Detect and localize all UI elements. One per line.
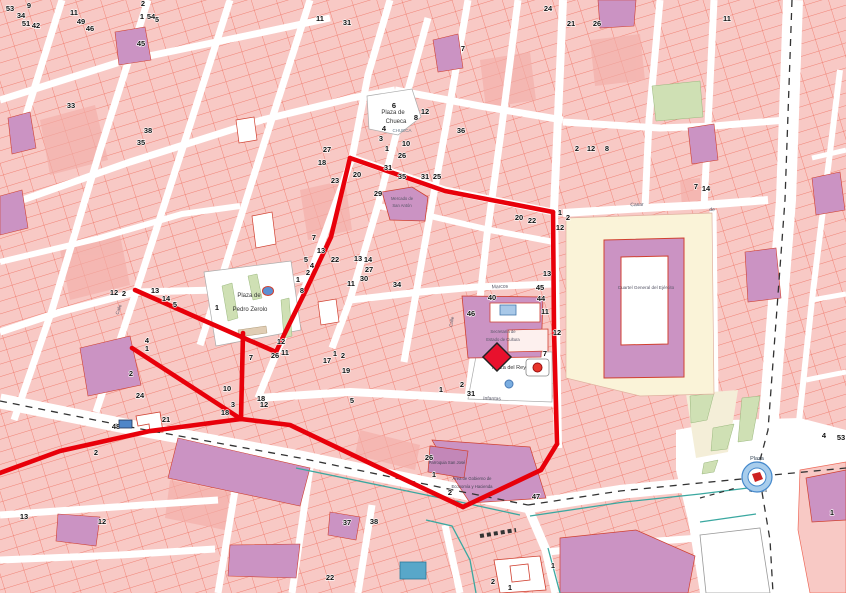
parcel-number: 2	[566, 213, 570, 222]
parcel-number: 27	[365, 265, 373, 274]
parcel-number: 11	[281, 348, 289, 357]
parcel-number: 14	[702, 184, 711, 193]
parcel-number: 44	[537, 294, 546, 303]
parcel-number: 51	[22, 19, 30, 28]
street-label: de	[709, 207, 715, 213]
route-boundary-line	[241, 333, 243, 419]
purple-parcel	[812, 172, 845, 215]
place-label: Cuartel General del Ejército	[618, 285, 675, 290]
blue-dot	[505, 380, 513, 388]
parcel-number: 10	[223, 384, 231, 393]
parcel-number: 13	[543, 269, 551, 278]
parcel-number: 1	[508, 583, 512, 592]
parcel-number: 34	[393, 280, 402, 289]
parcel-number: 53	[837, 433, 845, 442]
parcel-number: 29	[374, 189, 382, 198]
zerolo-fountain	[263, 287, 274, 296]
parcel-number: 10	[402, 139, 410, 148]
parcel-number: 12	[553, 328, 561, 337]
parcel-number: 53	[6, 4, 14, 13]
parcel-number: 23	[331, 176, 339, 185]
parcel-number: 18	[257, 394, 265, 403]
place-label: Área de Gobierno de	[453, 476, 493, 481]
parcel-number: 19	[342, 366, 350, 375]
street-label: Infantas	[483, 396, 501, 403]
parcel-number: 45	[137, 39, 145, 48]
parcel-number: 8	[300, 286, 304, 295]
purple-parcel	[745, 248, 781, 302]
place-label: Plaza de	[381, 110, 405, 116]
parcel-number: 18	[221, 408, 229, 417]
parcel-number: 12	[556, 223, 564, 232]
place-label: Estado de Cultura	[486, 337, 520, 342]
parcel-number: 1	[439, 385, 443, 394]
parcel-number: 5	[155, 15, 159, 24]
parcel-number: 13	[20, 512, 28, 521]
place-label: San Antón	[392, 203, 412, 208]
parcel-number: 12	[421, 107, 429, 116]
parcel-number: 7	[461, 44, 465, 53]
white-building	[236, 117, 257, 143]
green	[652, 81, 703, 121]
parcel-number: 6	[392, 101, 396, 110]
parcel-number: 46	[86, 24, 94, 33]
place-label: Economía y Hacienda	[452, 484, 494, 489]
pool	[500, 305, 516, 315]
parcel-number: 7	[543, 349, 547, 358]
parcel-number: 1	[385, 144, 389, 153]
parcel-number: 20	[515, 213, 523, 222]
parcel-number: 31	[467, 389, 475, 398]
parcel-number: 25	[433, 172, 441, 181]
place-label: Mercado de	[391, 196, 414, 201]
parcel-number: 36	[457, 126, 465, 135]
parcel-number: 2	[122, 289, 126, 298]
parcel-number: 12	[277, 337, 285, 346]
parcel-number: 21	[567, 19, 575, 28]
white-building	[252, 212, 276, 248]
purple-parcel	[688, 124, 718, 164]
pool	[400, 562, 426, 579]
courtyard	[621, 256, 668, 345]
parcel-number: 22	[326, 573, 334, 582]
parcel-shade	[590, 34, 645, 86]
parcel-number: 27	[323, 145, 331, 154]
place-label: CHUECA	[392, 128, 411, 133]
parcel-number: 37	[343, 518, 351, 527]
parcel-number: 7	[694, 182, 698, 191]
bus-icon	[119, 420, 132, 428]
place-label: Parroquia San José	[429, 460, 466, 465]
parcel-number: 38	[144, 126, 152, 135]
parcel-number: 11	[316, 14, 324, 23]
purple-parcel	[115, 27, 151, 65]
parcel-number: 2	[575, 144, 579, 153]
parcel-number: 14	[364, 255, 373, 264]
parcel-number: 12	[98, 517, 106, 526]
purple-parcel	[598, 0, 636, 28]
parcel-number: 3	[379, 134, 383, 143]
parcel-number: 46	[467, 309, 475, 318]
parcel-number: 47	[532, 492, 540, 501]
white-building	[318, 299, 339, 325]
parcel-number: 31	[343, 18, 351, 27]
parcel-number: 11	[347, 279, 355, 288]
parcel-number: 2	[460, 380, 464, 389]
parcel-number: 2	[141, 0, 145, 8]
parcel-number: 40	[488, 293, 496, 302]
parcel-number: 1	[333, 349, 337, 358]
parcel-number: 17	[323, 356, 331, 365]
parcel-number: 26	[593, 19, 601, 28]
parcel-number: 1	[558, 208, 562, 217]
parcel-number: 8	[414, 113, 418, 122]
parcel-number: 22	[528, 216, 536, 225]
white-building	[510, 564, 530, 582]
parcel-number: 9	[27, 1, 31, 10]
parcel-number: 26	[398, 151, 406, 160]
parcel-number: 24	[136, 391, 145, 400]
place-label: Pedro Zerolo	[233, 307, 268, 313]
parcel-number: 21	[162, 415, 170, 424]
parcel-number: 1	[432, 470, 436, 479]
parcel-number: 30	[360, 274, 368, 283]
parcel-number: 31	[384, 163, 392, 172]
place-label: Secretaría de	[490, 329, 516, 334]
street-label: Marcos	[492, 284, 509, 291]
parcel-number: 11	[70, 8, 78, 17]
place-label: Chueca	[386, 119, 407, 125]
parcel-number: 5	[350, 396, 354, 405]
parcel-number: 7	[312, 233, 316, 242]
parcel-number: 1	[551, 561, 555, 570]
parcel-number: 11	[723, 14, 731, 23]
parcel-number: 2	[94, 448, 98, 457]
parcel-number: 35	[137, 138, 145, 147]
parcel-number: 13	[151, 286, 159, 295]
parcel-number: 1	[296, 275, 300, 284]
parcel-number: 54	[147, 12, 156, 21]
poi-red-dot[interactable]	[533, 363, 542, 372]
parcel-number: 11	[541, 307, 549, 316]
parcel-number: 2	[491, 577, 495, 586]
parcel-number: 22	[331, 255, 339, 264]
map-canvas[interactable]: 5393451421149462154533383554113124212611…	[0, 0, 846, 593]
parcel-number: 33	[67, 101, 75, 110]
parcel-number: 13	[317, 246, 325, 255]
purple-parcel	[228, 544, 300, 578]
parcel-number: 38	[370, 517, 378, 526]
parcel-number: 42	[32, 21, 40, 30]
parcel-number: 3	[231, 400, 235, 409]
parcel-number: 20	[353, 170, 361, 179]
parcel-number: 2	[341, 351, 345, 360]
parcel-number: 1	[215, 303, 219, 312]
parcel-number: 2	[129, 369, 133, 378]
parcel-number: 2	[448, 488, 452, 497]
parcel-number: 1	[830, 508, 834, 517]
place-label: Plaza de	[237, 293, 261, 299]
parcel-number: 24	[544, 4, 553, 13]
parcel-number: 5	[173, 300, 177, 309]
parcel-number: 31	[421, 172, 429, 181]
parcel-number: 45	[536, 283, 544, 292]
white-building	[700, 528, 770, 593]
place-label: Plaza	[750, 456, 765, 462]
street-label: Casar	[630, 202, 644, 208]
parcel-number: 18	[318, 158, 326, 167]
purple-parcel	[806, 470, 846, 522]
parcel-number: 7	[249, 353, 253, 362]
parcel-number: 12	[587, 144, 595, 153]
purple-parcel	[56, 514, 100, 546]
city-map[interactable]: 5393451421149462154533383554113124212611…	[0, 0, 846, 593]
parcel-number: 12	[110, 288, 118, 297]
purple-parcel	[433, 34, 463, 72]
parcel-number: 49	[77, 17, 85, 26]
parcel-number: 1	[140, 12, 144, 21]
parcel-number: 8	[605, 144, 609, 153]
parcel-number: 35	[398, 172, 406, 181]
parcel-number: 13	[354, 254, 362, 263]
parcel-number: 2	[306, 268, 310, 277]
parcel-number: 14	[162, 294, 171, 303]
parcel-number: 1	[145, 344, 149, 353]
parcel-number: 26	[271, 351, 279, 360]
parcel-number: 5	[304, 255, 308, 264]
